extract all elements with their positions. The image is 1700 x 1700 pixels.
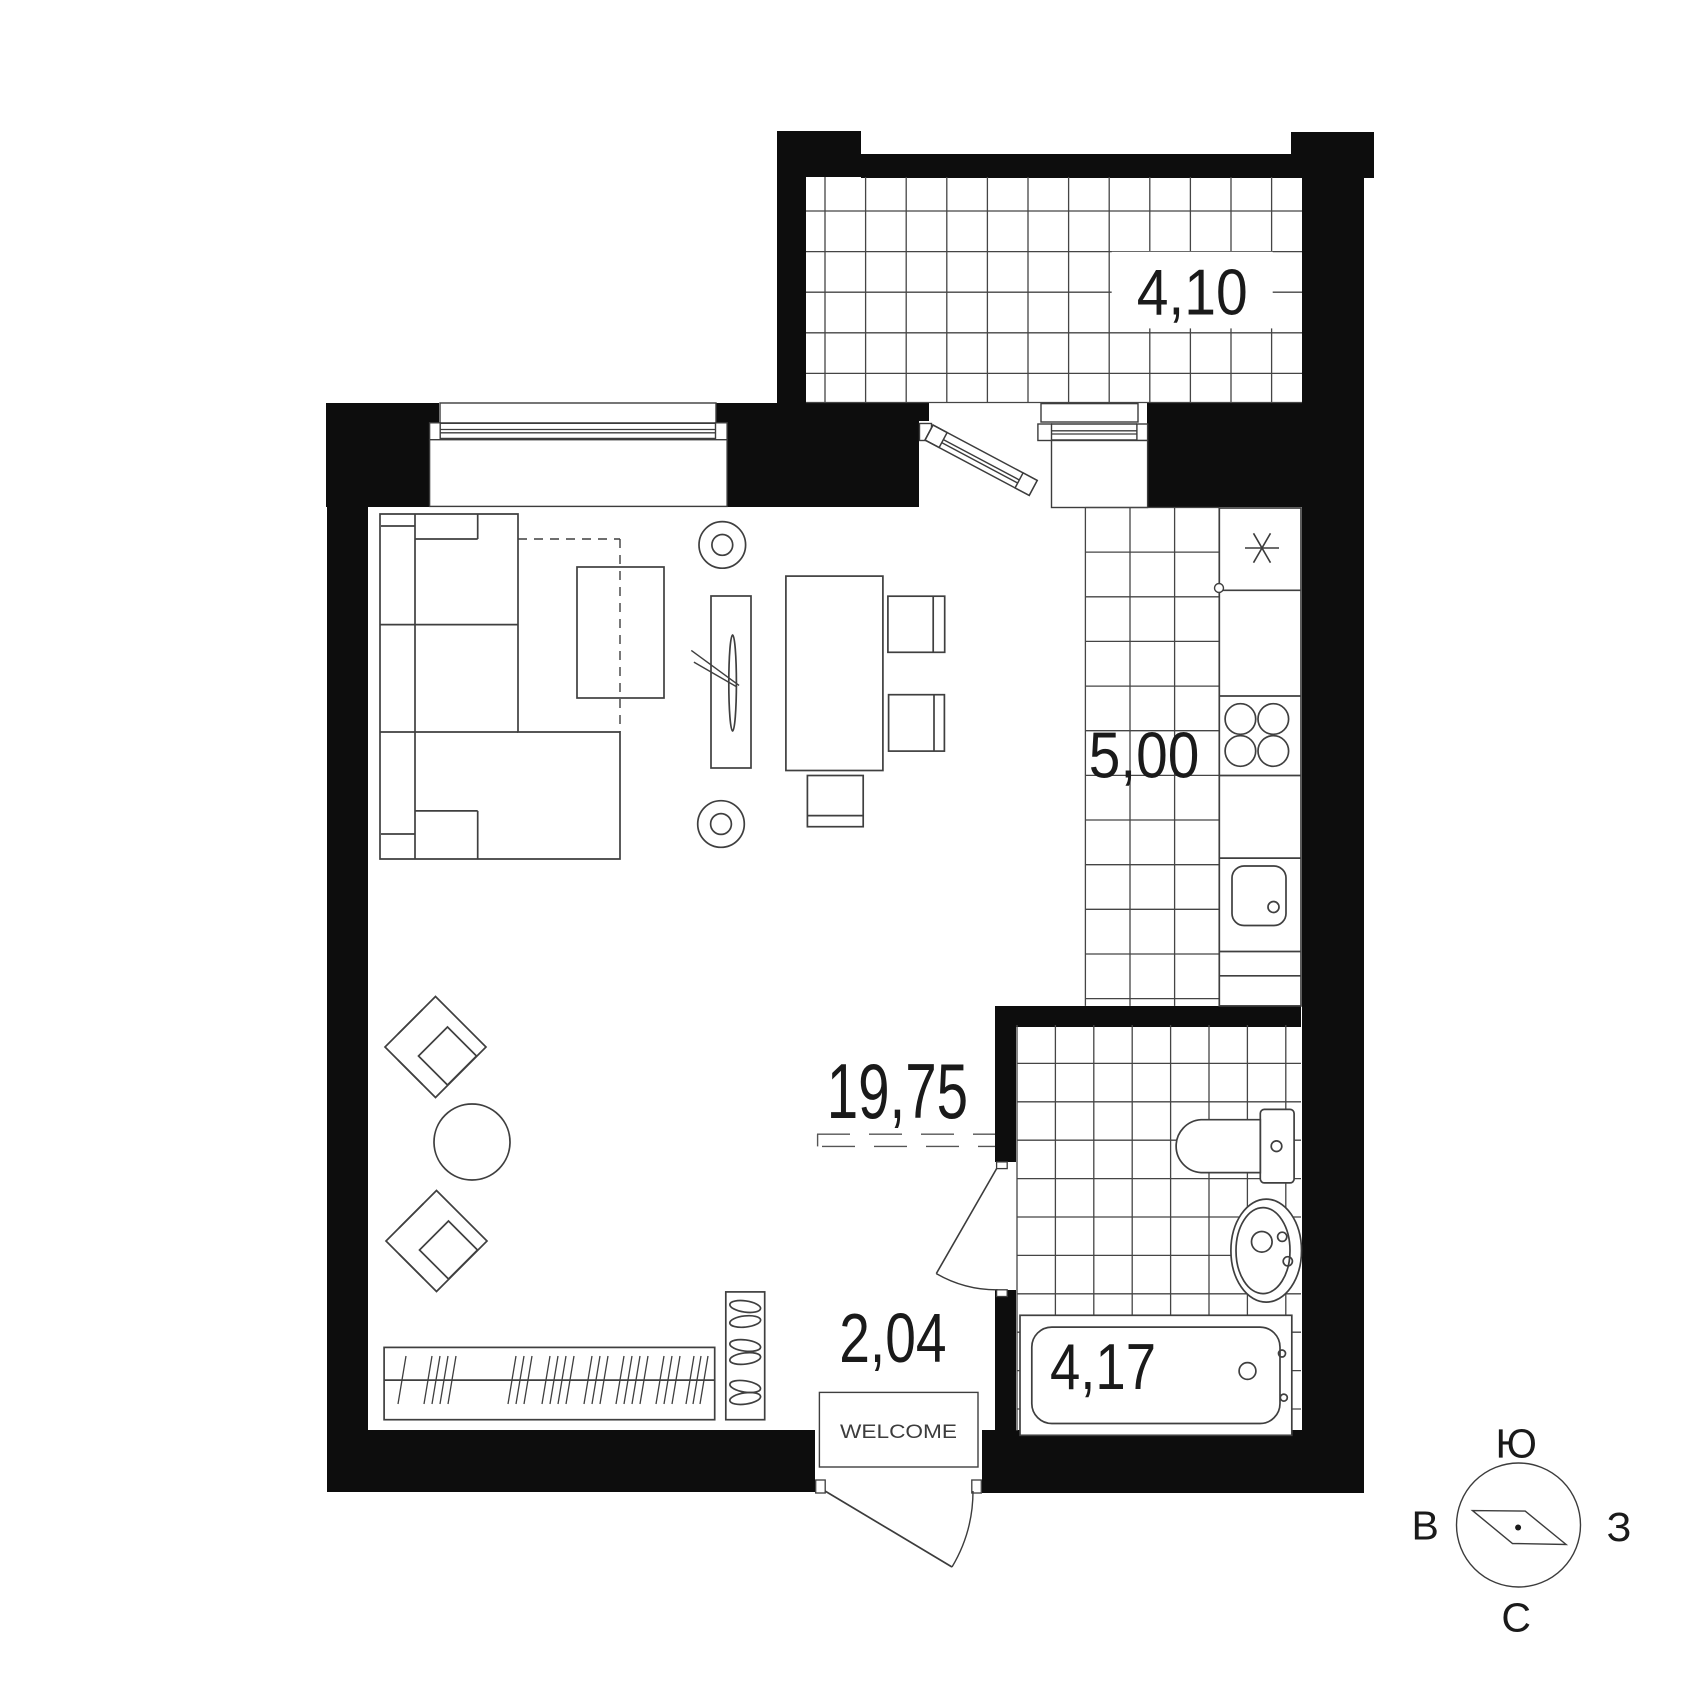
svg-text:4,17: 4,17 — [1050, 1330, 1156, 1403]
svg-text:5,00: 5,00 — [1089, 719, 1200, 792]
svg-text:В: В — [1412, 1503, 1439, 1549]
svg-text:2,04: 2,04 — [839, 1299, 946, 1377]
svg-text:19,75: 19,75 — [827, 1047, 968, 1135]
svg-text:С: С — [1501, 1595, 1531, 1641]
svg-text:Ю: Ю — [1495, 1420, 1536, 1466]
svg-text:З: З — [1607, 1504, 1632, 1550]
svg-text:WELCOME: WELCOME — [840, 1421, 957, 1443]
svg-text:4,10: 4,10 — [1137, 256, 1248, 329]
